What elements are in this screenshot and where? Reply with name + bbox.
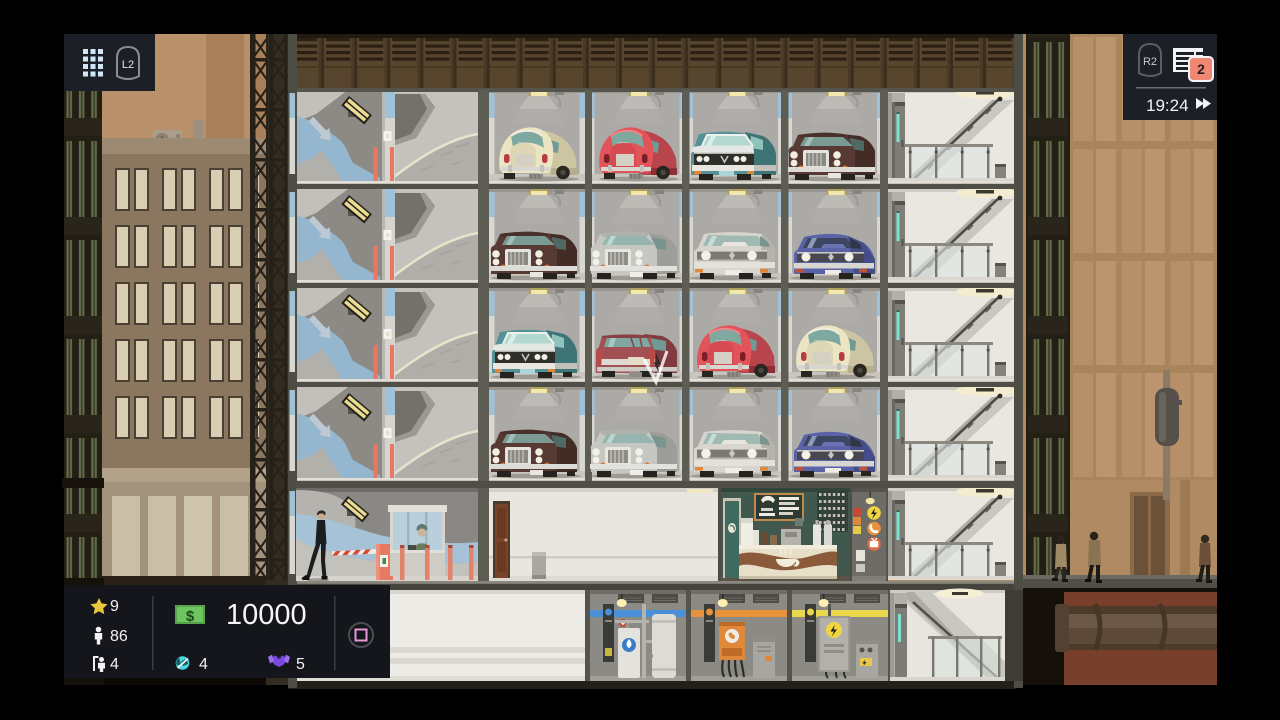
- svg-text:4: 4: [199, 656, 208, 673]
- svg-text:L2: L2: [122, 59, 134, 71]
- svg-text:9: 9: [110, 598, 119, 615]
- svg-text:2: 2: [1197, 61, 1205, 77]
- svg-text:5: 5: [296, 656, 305, 673]
- svg-text:4: 4: [110, 656, 119, 673]
- svg-text:R2: R2: [1143, 56, 1157, 68]
- svg-text:86: 86: [110, 628, 128, 645]
- svg-text:$: $: [186, 608, 195, 625]
- svg-text:10000: 10000: [226, 599, 307, 631]
- svg-text:19:24: 19:24: [1146, 96, 1189, 115]
